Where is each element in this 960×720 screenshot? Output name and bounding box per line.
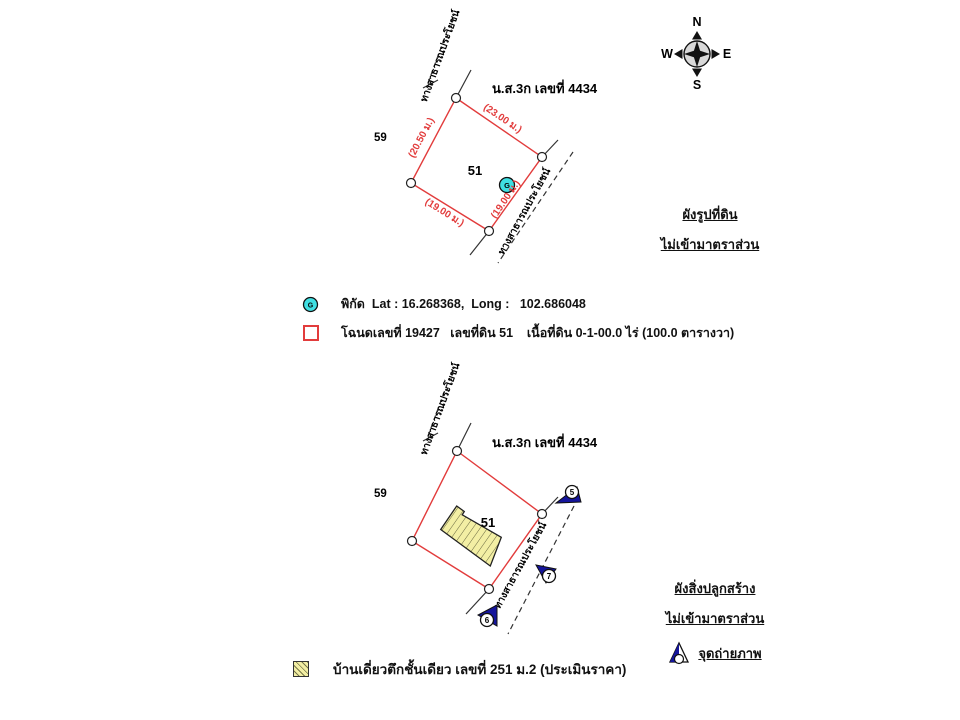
camera-point-6: 6 <box>478 605 497 627</box>
camera-number-label: 7 <box>547 572 552 581</box>
boundary-vertex <box>452 94 461 103</box>
compass-west-label: W <box>661 47 673 61</box>
boundary-vertex <box>407 179 416 188</box>
neighbor-parcel-label: 59 <box>374 132 387 144</box>
boundary-vertex <box>538 510 547 519</box>
road-label-right: ทางสาธารณประโยชน์ <box>491 520 550 611</box>
road-label-top: ทางสาธารณประโยชน์ <box>417 361 462 457</box>
photo-point-circle <box>675 655 684 664</box>
building-plan-heading: ผังสิ่งปลูกสร้าง ไม่เข้ามาตราส่วน จุดถ่า… <box>630 578 800 664</box>
road-label-top: ทางสาธารณประโยชน์ <box>417 8 462 104</box>
deed-legend-row: โฉนดเลขที่ 19427 เลขที่ดิน 51 เนื้อที่ดิ… <box>303 323 734 343</box>
adjacent-doc-ref-label: น.ส.3ก เลขที่ 4434 <box>492 79 598 96</box>
photo-point-legend-row: จุดถ่ายภาพ <box>668 642 761 664</box>
boundary-vertex <box>453 447 462 456</box>
parcel-number-label: 51 <box>468 163 482 178</box>
building-description-text: บ้านเดี่ยวตึกชั้นเดียว เลขที่ 251 ม.2 (ป… <box>333 658 626 680</box>
compass-rose-icon: N S W E <box>650 8 746 98</box>
building-legend-icon <box>293 661 309 677</box>
compass-arrow-south <box>692 69 702 78</box>
plot-plan-heading: ผังรูปที่ดิน ไม่เข้ามาตราส่วน <box>630 204 790 255</box>
boundary-vertex <box>485 585 494 594</box>
photo-point-icon <box>668 642 690 664</box>
compass-north-label: N <box>692 15 701 29</box>
g-legend-label: G <box>308 302 314 309</box>
g-marker-legend-icon: G <box>302 296 319 313</box>
boundary-vertex <box>538 153 547 162</box>
dimension-label-nw: (20.50 ม.) <box>407 116 437 160</box>
boundary-vertex <box>408 537 417 546</box>
coordinates-text: พิกัด Lat : 16.268368, Long : 102.686048 <box>341 294 586 314</box>
plot-plan-title: ผังรูปที่ดิน <box>682 204 737 225</box>
land-plot-diagram: G น.ส.3ก เลขที่ 4434 59 51 (20.50 ม.) (2… <box>350 0 640 285</box>
camera-number-label: 5 <box>570 488 575 497</box>
deed-info-text: โฉนดเลขที่ 19427 เลขที่ดิน 51 เนื้อที่ดิ… <box>341 323 734 343</box>
coordinate-legend-row: G พิกัด Lat : 16.268368, Long : 102.6860… <box>302 294 586 314</box>
parcel-number-label: 51 <box>481 515 495 530</box>
compass-south-label: S <box>693 78 701 92</box>
compass-arrow-north <box>692 31 702 40</box>
camera-number-label: 6 <box>485 616 490 625</box>
plot-plan-scale-note: ไม่เข้ามาตราส่วน <box>661 234 759 255</box>
photo-point-label: จุดถ่ายภาพ <box>698 643 761 664</box>
compass-arrow-west <box>674 49 683 59</box>
parcel-boundary-legend-icon <box>303 325 319 341</box>
boundary-vertex <box>485 227 494 236</box>
adjacent-doc-ref-label: น.ส.3ก เลขที่ 4434 <box>492 433 598 450</box>
camera-point-5: 5 <box>556 486 581 504</box>
survey-document-page: N S W E G น.ส.3ก เลขที่ 4434 59 51 (20.5… <box>0 0 960 720</box>
neighbor-parcel-label: 59 <box>374 488 387 500</box>
compass-arrow-east <box>712 49 721 59</box>
building-plan-title: ผังสิ่งปลูกสร้าง <box>675 578 756 599</box>
building-plan-diagram: น.ส.3ก เลขที่ 4434 59 51 ทางสาธารณประโยช… <box>350 360 640 650</box>
building-plan-scale-note: ไม่เข้ามาตราส่วน <box>666 608 764 629</box>
building-legend-row: บ้านเดี่ยวตึกชั้นเดียว เลขที่ 251 ม.2 (ป… <box>293 658 626 680</box>
compass-east-label: E <box>723 47 731 61</box>
